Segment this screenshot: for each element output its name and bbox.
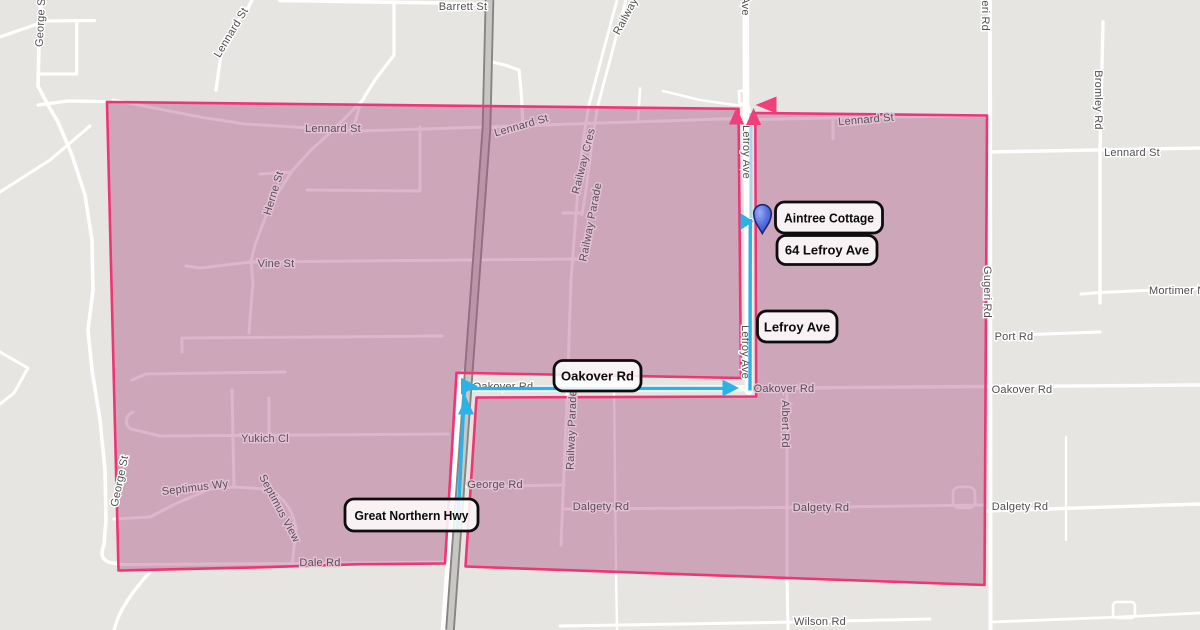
svg-text:Gugeri Rd: Gugeri Rd — [981, 266, 993, 318]
svg-text:Vine St: Vine St — [258, 258, 295, 270]
svg-text:Albert Rd: Albert Rd — [779, 400, 791, 448]
svg-text:Oakover Rd: Oakover Rd — [561, 369, 634, 384]
svg-text:Yukich Cl: Yukich Cl — [241, 433, 289, 445]
svg-text:Dale Rd: Dale Rd — [299, 557, 340, 569]
svg-text:Oakover Rd: Oakover Rd — [992, 384, 1053, 396]
svg-text:64 Lefroy Ave: 64 Lefroy Ave — [785, 243, 869, 258]
svg-text:Aintree Cottage: Aintree Cottage — [784, 211, 874, 226]
svg-text:Dalgety Rd: Dalgety Rd — [793, 502, 849, 514]
svg-text:Lennard St: Lennard St — [305, 123, 361, 135]
svg-text:Barrett St: Barrett St — [439, 1, 487, 13]
svg-text:Ave: Ave — [739, 0, 751, 16]
svg-text:Port Rd: Port Rd — [995, 331, 1034, 343]
svg-text:Dalgety Rd: Dalgety Rd — [573, 501, 629, 513]
svg-text:Oakover Rd: Oakover Rd — [754, 383, 815, 395]
svg-text:Gugeri Rd: Gugeri Rd — [979, 0, 991, 31]
svg-text:Lennard St: Lennard St — [1104, 147, 1160, 159]
svg-text:Mortimer Nor: Mortimer Nor — [1149, 285, 1200, 297]
svg-text:Lefroy Ave: Lefroy Ave — [764, 320, 830, 335]
svg-text:George Rd: George Rd — [467, 479, 523, 491]
svg-text:Dalgety Rd: Dalgety Rd — [992, 501, 1048, 513]
svg-text:Wilson Rd: Wilson Rd — [794, 616, 846, 628]
svg-text:Bromley Rd: Bromley Rd — [1092, 70, 1104, 129]
svg-text:Great Northern Hwy: Great Northern Hwy — [355, 508, 470, 523]
